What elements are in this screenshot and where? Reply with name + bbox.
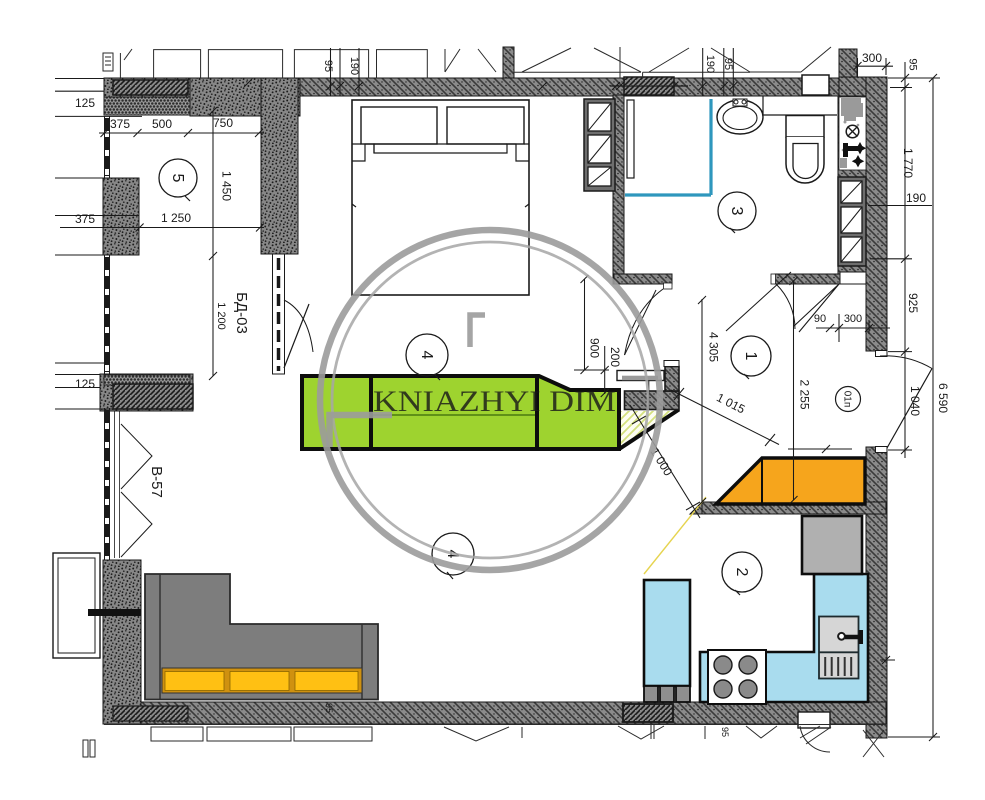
svg-text:95: 95 <box>322 60 334 72</box>
svg-text:500: 500 <box>152 117 172 131</box>
svg-text:375: 375 <box>75 212 95 226</box>
svg-text:1: 1 <box>742 352 759 361</box>
svg-text:KNIAZHYI DIM: KNIAZHYI DIM <box>373 385 616 418</box>
svg-text:4: 4 <box>418 351 435 360</box>
svg-text:95: 95 <box>720 727 730 737</box>
svg-text:1 200: 1 200 <box>215 302 227 330</box>
svg-text:375: 375 <box>110 117 130 131</box>
svg-text:95: 95 <box>907 58 919 70</box>
svg-text:3: 3 <box>728 207 745 216</box>
svg-text:5: 5 <box>169 174 186 183</box>
svg-text:190: 190 <box>348 57 360 75</box>
svg-text:125: 125 <box>75 96 95 110</box>
svg-text:1 250: 1 250 <box>161 211 191 225</box>
svg-text:900: 900 <box>588 338 602 358</box>
svg-text:200: 200 <box>608 347 622 367</box>
svg-text:1 040: 1 040 <box>908 386 922 416</box>
svg-text:1 770: 1 770 <box>901 148 915 178</box>
svg-text:190: 190 <box>704 55 716 73</box>
svg-text:925: 925 <box>906 293 920 313</box>
svg-text:125: 125 <box>75 377 95 391</box>
svg-text:БД-03: БД-03 <box>233 292 250 334</box>
svg-text:1 450: 1 450 <box>220 171 234 201</box>
svg-text:01п: 01п <box>842 391 853 408</box>
svg-text:190: 190 <box>906 191 926 205</box>
svg-text:95: 95 <box>324 703 334 713</box>
svg-text:300: 300 <box>862 51 882 65</box>
svg-text:750: 750 <box>213 116 233 130</box>
svg-text:6 590: 6 590 <box>936 383 950 413</box>
svg-text:2: 2 <box>733 568 750 577</box>
svg-text:2 255: 2 255 <box>798 379 812 409</box>
svg-text:В-57: В-57 <box>148 466 165 498</box>
svg-text:95: 95 <box>722 58 734 70</box>
svg-text:4 305: 4 305 <box>707 332 721 362</box>
svg-text:90: 90 <box>814 313 826 325</box>
svg-text:300: 300 <box>844 313 862 325</box>
